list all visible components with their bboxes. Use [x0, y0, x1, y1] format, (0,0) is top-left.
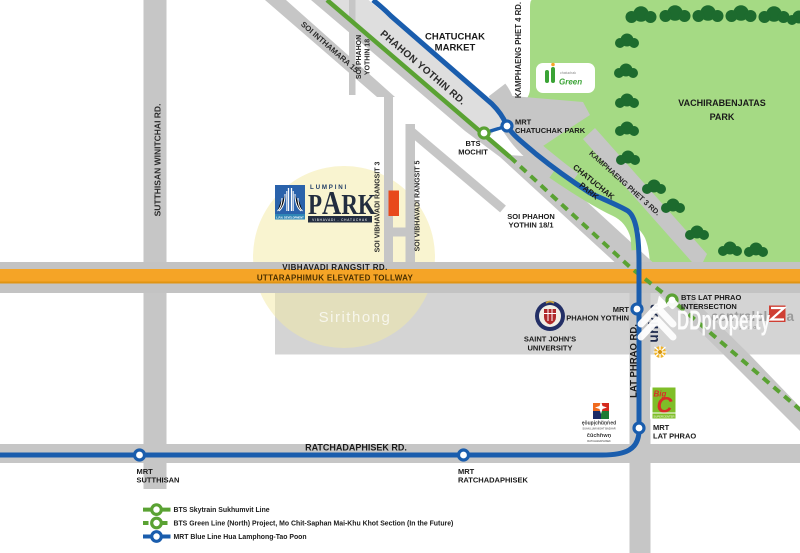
- svg-text:MRT Blue Line Hua Lamphong-Tao: MRT Blue Line Hua Lamphong-Tao Poon: [174, 534, 307, 541]
- svg-text:INTERSECTION: INTERSECTION: [681, 302, 737, 311]
- svg-text:L.P.N. DEVELOPMENT: L.P.N. DEVELOPMENT: [276, 215, 304, 219]
- svg-text:LAT PHRAO RD.: LAT PHRAO RD.: [629, 324, 640, 398]
- svg-text:BTS Skytrain Sukhumvit Line: BTS Skytrain Sukhumvit Line: [174, 507, 270, 514]
- svg-text:SUAN LUM NIGHT BAZAAR: SUAN LUM NIGHT BAZAAR: [582, 427, 615, 431]
- svg-text:PARK: PARK: [710, 112, 735, 122]
- svg-text:RATCHADAPHISEK: RATCHADAPHISEK: [458, 476, 528, 485]
- svg-text:SUPERCENTER: SUPERCENTER: [653, 415, 674, 419]
- svg-text:ęöupįchŭņŕıed: ęöupįchŭņŕıed: [582, 421, 616, 427]
- svg-text:KAMPHAENG PHET 4 RD.: KAMPHAENG PHET 4 RD.: [514, 2, 523, 98]
- svg-text:čūchřıwņ: čūchřıwņ: [587, 433, 612, 439]
- svg-text:SOI VIBHAVADI RANGSIT 5: SOI VIBHAVADI RANGSIT 5: [415, 161, 422, 252]
- svg-text:UTTARAPHIMUK ELEVATED TOLLWAY: UTTARAPHIMUK ELEVATED TOLLWAY: [257, 274, 414, 283]
- svg-text:VIBHAVADI RANGSIT RD.: VIBHAVADI RANGSIT RD.: [282, 263, 387, 272]
- svg-text:VACHIRABENJATAS: VACHIRABENJATAS: [678, 98, 766, 108]
- svg-text:MARKET: MARKET: [435, 43, 476, 54]
- svg-text:SUTTHISAN: SUTTHISAN: [137, 476, 180, 485]
- svg-text:chatuchak: chatuchak: [560, 71, 576, 75]
- svg-text:YOTHIN 18/1: YOTHIN 18/1: [508, 221, 553, 230]
- svg-text:CHATUCHAK: CHATUCHAK: [425, 32, 485, 43]
- svg-text:a: a: [787, 309, 795, 324]
- svg-text:SAINT JOHN'S: SAINT JOHN'S: [524, 335, 576, 344]
- svg-text:PHAHON YOTHIN: PHAHON YOTHIN: [566, 314, 629, 323]
- svg-text:UNIVERSITY: UNIVERSITY: [527, 344, 572, 353]
- svg-text:BTS LAT PHRAO: BTS LAT PHRAO: [681, 293, 741, 302]
- svg-text:RATCHADAPHISEK: RATCHADAPHISEK: [587, 439, 611, 443]
- svg-text:CHATUCHAK PARK: CHATUCHAK PARK: [515, 126, 586, 135]
- svg-text:RATCHADAPHISEK RD.: RATCHADAPHISEK RD.: [305, 443, 407, 453]
- svg-text:SUTTHISAN WINITCHAI RD.: SUTTHISAN WINITCHAI RD.: [153, 104, 163, 217]
- svg-text:VIBHAVADI - CHATUCHAK: VIBHAVADI - CHATUCHAK: [312, 218, 368, 222]
- svg-text:Sirithong: Sirithong: [319, 309, 392, 326]
- svg-text:Green: Green: [559, 78, 582, 87]
- svg-text:MOCHIT: MOCHIT: [458, 148, 488, 157]
- svg-text:SOI VIBHAVADI RANGSIT 3: SOI VIBHAVADI RANGSIT 3: [375, 162, 382, 253]
- svg-text:LAT PHRAO: LAT PHRAO: [653, 432, 696, 441]
- svg-text:BTS Green Line (North) Project: BTS Green Line (North) Project, Mo Chit-…: [174, 521, 454, 528]
- svg-text:SOI PHAHON: SOI PHAHON: [356, 35, 363, 79]
- svg-text:YOTHIN 18: YOTHIN 18: [365, 39, 372, 75]
